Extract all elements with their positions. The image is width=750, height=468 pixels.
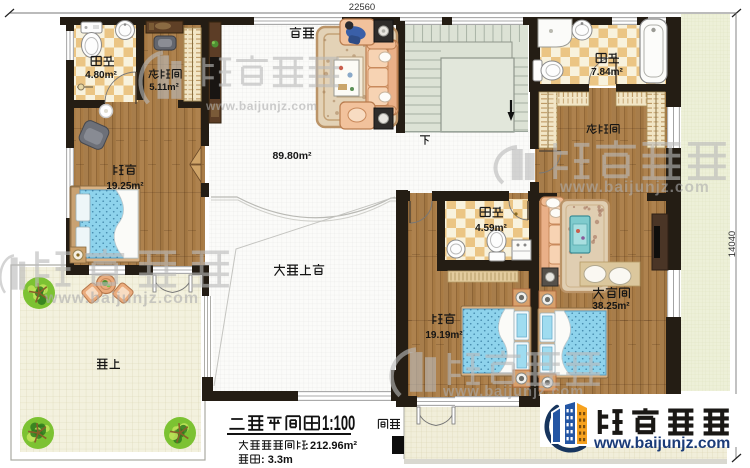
svg-text:212.96m²: 212.96m² bbox=[310, 440, 357, 452]
svg-text:22560: 22560 bbox=[349, 2, 375, 13]
svg-text:www.baijunjz.com: www.baijunjz.com bbox=[559, 179, 710, 196]
svg-text:14040: 14040 bbox=[727, 231, 738, 257]
svg-text:www.baijunjz.com: www.baijunjz.com bbox=[593, 435, 730, 452]
svg-text:: 3.3m: : 3.3m bbox=[261, 454, 293, 466]
svg-text:www.baijunjz.com: www.baijunjz.com bbox=[205, 99, 318, 113]
svg-text:38.25m²: 38.25m² bbox=[592, 301, 630, 312]
svg-text:7.84m²: 7.84m² bbox=[591, 67, 623, 78]
svg-text:www.baijunjz.com: www.baijunjz.com bbox=[44, 290, 199, 307]
svg-text:4.80m²: 4.80m² bbox=[85, 70, 117, 81]
svg-text:4.59m²: 4.59m² bbox=[475, 223, 507, 234]
svg-text:19.25m²: 19.25m² bbox=[106, 181, 144, 192]
svg-text::: : bbox=[305, 440, 309, 452]
svg-text:89.80m²: 89.80m² bbox=[272, 150, 312, 162]
svg-text:1:100: 1:100 bbox=[322, 411, 355, 435]
svg-text:19.19m²: 19.19m² bbox=[425, 330, 463, 341]
svg-text:5.11m²: 5.11m² bbox=[149, 82, 179, 93]
